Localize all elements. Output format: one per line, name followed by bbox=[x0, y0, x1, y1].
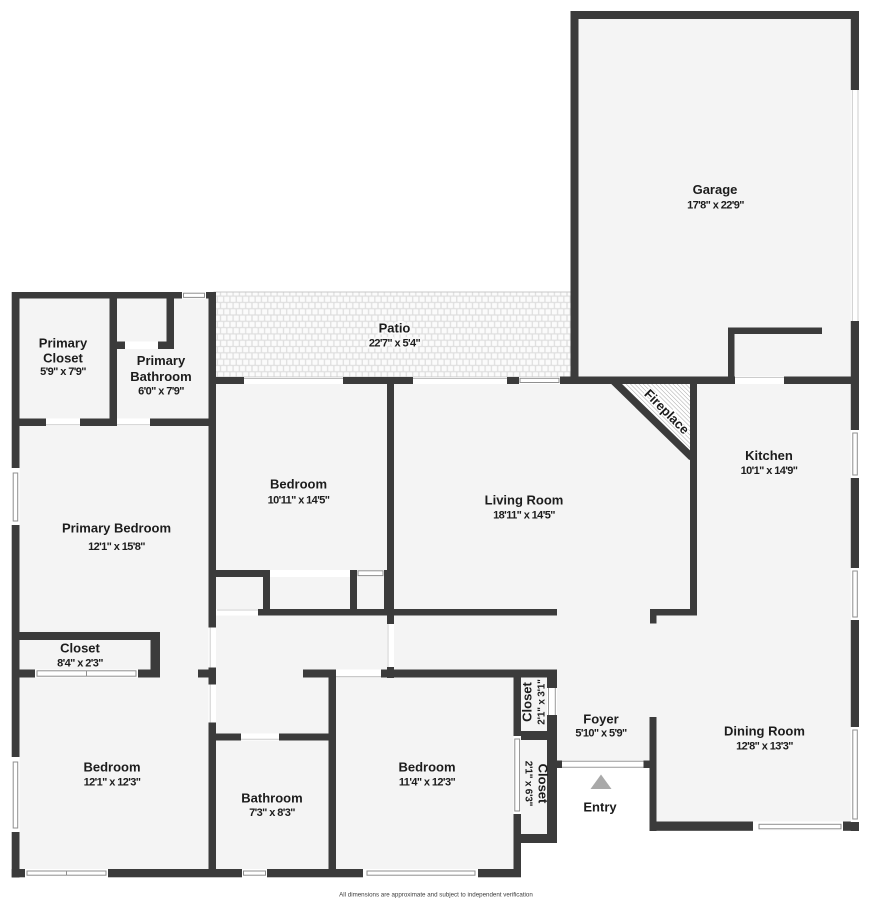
svg-text:Bedroom: Bedroom bbox=[398, 760, 455, 775]
svg-text:Closet: Closet bbox=[43, 351, 83, 366]
svg-text:Dining Room: Dining Room bbox=[724, 723, 805, 738]
svg-text:12'1" x 15'8": 12'1" x 15'8" bbox=[88, 541, 145, 553]
svg-text:6'0" x 7'9": 6'0" x 7'9" bbox=[138, 385, 184, 397]
svg-text:Closet: Closet bbox=[520, 681, 535, 721]
svg-text:22'7" x 5'4": 22'7" x 5'4" bbox=[369, 338, 421, 350]
svg-text:8'4" x 2'3": 8'4" x 2'3" bbox=[57, 657, 103, 669]
svg-text:Bedroom: Bedroom bbox=[83, 760, 140, 775]
svg-text:Patio: Patio bbox=[379, 321, 411, 336]
svg-text:Bathroom: Bathroom bbox=[130, 369, 191, 384]
svg-text:5'10" x 5'9": 5'10" x 5'9" bbox=[575, 727, 627, 739]
svg-text:Kitchen: Kitchen bbox=[745, 448, 793, 463]
svg-text:2'1" x 3'1": 2'1" x 3'1" bbox=[537, 679, 548, 725]
svg-text:10'11" x 14'5": 10'11" x 14'5" bbox=[268, 495, 330, 507]
svg-text:12'8" x 13'3": 12'8" x 13'3" bbox=[736, 741, 793, 753]
svg-text:Foyer: Foyer bbox=[583, 711, 618, 726]
svg-text:Bathroom: Bathroom bbox=[241, 790, 302, 805]
svg-text:Primary: Primary bbox=[39, 336, 88, 351]
svg-text:Bedroom: Bedroom bbox=[270, 477, 327, 492]
svg-text:Garage: Garage bbox=[693, 182, 738, 197]
svg-text:10'1" x 14'9": 10'1" x 14'9" bbox=[741, 465, 798, 477]
svg-text:18'11" x 14'5": 18'11" x 14'5" bbox=[493, 510, 555, 522]
svg-text:12'1" x 12'3": 12'1" x 12'3" bbox=[84, 777, 141, 789]
svg-text:Closet: Closet bbox=[536, 764, 551, 804]
svg-text:2'1" x 6'3": 2'1" x 6'3" bbox=[523, 761, 534, 807]
svg-text:5'9" x 7'9": 5'9" x 7'9" bbox=[40, 366, 86, 378]
svg-text:Living Room: Living Room bbox=[485, 493, 564, 508]
svg-text:11'4" x 12'3": 11'4" x 12'3" bbox=[399, 777, 456, 789]
svg-text:Closet: Closet bbox=[60, 641, 100, 656]
svg-text:17'8" x 22'9": 17'8" x 22'9" bbox=[687, 200, 744, 212]
svg-text:Primary Bedroom: Primary Bedroom bbox=[62, 521, 171, 536]
svg-text:All dimensions are approximate: All dimensions are approximate and subje… bbox=[339, 892, 533, 899]
svg-text:Primary: Primary bbox=[137, 353, 186, 368]
svg-text:7'3" x 8'3": 7'3" x 8'3" bbox=[249, 807, 295, 819]
svg-text:Entry: Entry bbox=[583, 800, 617, 815]
